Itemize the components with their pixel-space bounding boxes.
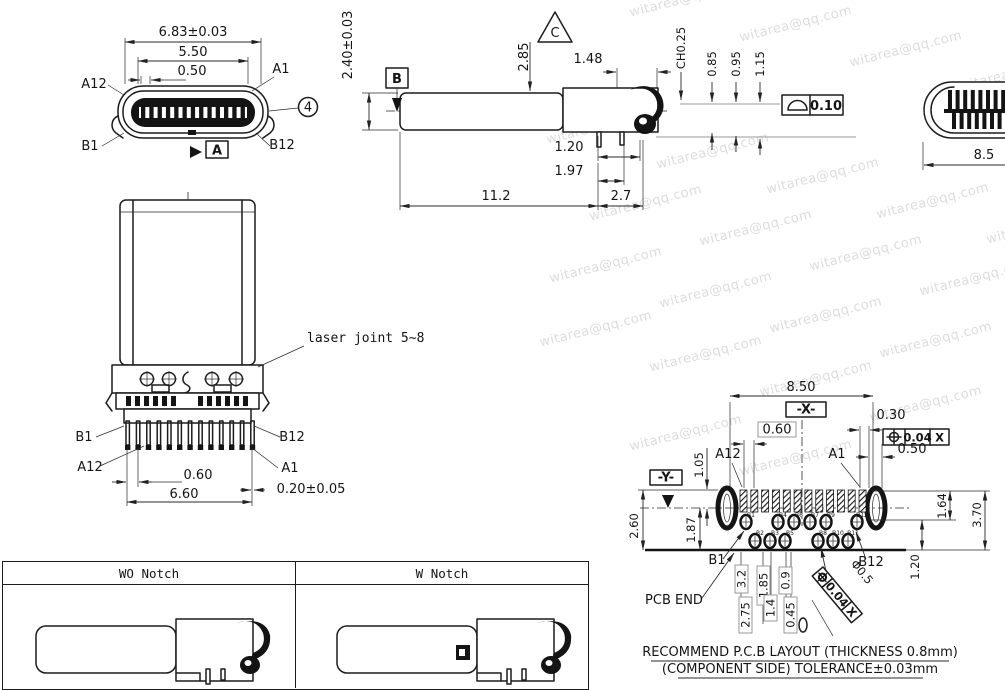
pad-label: B1	[747, 512, 755, 519]
label-a1: A1	[828, 447, 845, 462]
svg-text:-Y-: -Y-	[658, 471, 674, 486]
watermark: witarea@qq.com	[658, 269, 774, 311]
watermark: witarea@qq.com	[875, 180, 991, 222]
dim-275: 2.75	[739, 602, 753, 628]
dim-370: 3.70	[970, 502, 984, 528]
dim-095: 0.95	[729, 51, 743, 77]
watermark: witarea@qq.com	[918, 257, 1005, 299]
watermark: witarea@qq.com	[538, 308, 654, 350]
dim-850: 8.50	[787, 380, 816, 395]
dim-85: 8.5	[974, 148, 995, 163]
pcb-pads: B1B4B6B7B9B12B2B3B5B8B10B11	[640, 488, 912, 548]
label-a12: A12	[81, 77, 106, 92]
plug-body-view: laser joint 5~8 B1 B12 A12 A1 0.60 0.20±…	[64, 190, 444, 510]
dim-09: 0.9	[779, 571, 793, 589]
notch-col2-header: W Notch	[295, 562, 588, 584]
datum-y-symbol: -Y-	[650, 470, 682, 508]
notch-cell-w	[295, 585, 588, 688]
smt-pad-row	[740, 490, 866, 512]
dim-060: 0.60	[184, 468, 213, 483]
dim-120: 1.20	[555, 140, 584, 155]
watermark: witarea@qq.com	[648, 333, 764, 375]
partial-dimensions: 8.5	[923, 142, 1005, 170]
pad-label: B6	[795, 512, 803, 519]
svg-text:A: A	[212, 144, 222, 159]
label-a12: A12	[715, 447, 740, 462]
watermark: witarea@qq.com	[878, 319, 994, 361]
plug-outline	[106, 192, 269, 450]
pcb-end-label: PCB END	[645, 593, 703, 608]
dim-120: 1.20	[908, 554, 922, 580]
notch-cell-wo	[3, 585, 295, 688]
right-partial-view: 8.5	[912, 58, 1005, 176]
label-b1: B1	[75, 430, 92, 445]
dim-197: 1.97	[555, 164, 584, 179]
stacked-dim-boxes: 3.2 1.85 0.9 2.75 1.4 0.45	[735, 565, 798, 633]
notch-table-header: WO Notch W Notch	[3, 562, 588, 585]
pad-label: B10	[832, 530, 844, 537]
notch-col1-header: WO Notch	[3, 562, 295, 584]
label-a1: A1	[272, 62, 289, 77]
watermark: witarea@qq.com	[548, 244, 664, 286]
profile-tolerance-frame: 0.10	[782, 95, 843, 115]
datum-x-symbol: -X-	[786, 402, 826, 418]
datum-a-symbol: A	[190, 141, 228, 159]
front-view: 6.83±0.03 5.50 0.50 A12 A1 B1 B12 4	[78, 0, 370, 172]
svg-text:B: B	[392, 72, 402, 87]
pcb-title-line1: RECOMMEND P.C.B LAYOUT (THICKNESS 0.8mm)	[642, 645, 958, 660]
dim-inner: 5.50	[179, 45, 208, 60]
front-body-outline	[112, 86, 274, 138]
dim-085: 0.85	[705, 51, 719, 77]
pad-label: B4	[779, 512, 787, 519]
label-b1: B1	[708, 553, 725, 568]
drawing-sheet: witarea@qq.comwitarea@qq.comwitarea@qq.c…	[0, 0, 1005, 690]
label-b12: B12	[279, 430, 304, 445]
side-view: 2.40±0.03 B C 2.85 1.48 CH0.25 0.85	[336, 0, 870, 222]
balloon-4: 4	[269, 98, 318, 117]
plug-profile-outline	[36, 619, 270, 684]
pad-label: B5	[786, 530, 794, 537]
dim-105: 1.05	[692, 452, 706, 478]
pad-label: B12	[856, 512, 868, 519]
dim-185: 1.85	[757, 573, 771, 599]
dim-ch025: CH0.25	[674, 27, 688, 69]
watermark: witarea@qq.com	[808, 232, 924, 274]
svg-text:0.60: 0.60	[763, 423, 792, 438]
pcb-title-line2: (COMPONENT SIDE) TOLERANCE±0.03mm	[662, 662, 938, 677]
dim-030: 0.30	[877, 408, 906, 423]
dim-148: 1.48	[574, 52, 603, 67]
dim-pitch: 0.50	[178, 64, 207, 79]
pad-label: B7	[811, 512, 819, 519]
dim-187: 1.87	[684, 517, 698, 543]
svg-text:X: X	[935, 431, 944, 445]
notch-table: WO Notch W Notch	[2, 561, 589, 690]
pad-label: B9	[827, 512, 835, 519]
dim-050: 0.50	[898, 442, 927, 457]
dim-width: 6.83±0.03	[159, 25, 228, 40]
pad-label: B2	[756, 530, 764, 537]
pcb-layout-view: 8.50 -X- 0.60 0.30	[620, 378, 1005, 690]
pcb-titles: RECOMMEND P.C.B LAYOUT (THICKNESS 0.8mm)…	[642, 645, 958, 678]
laser-joint-note: laser joint 5~8	[307, 331, 424, 346]
dim-32: 3.2	[735, 570, 749, 588]
position-tolerance-frame-2: 0.04 X	[812, 567, 862, 623]
label-a12: A12	[77, 460, 102, 475]
watermark: witarea@qq.com	[768, 294, 884, 336]
dim-27: 2.7	[611, 189, 632, 204]
dim-height: 2.40±0.03	[341, 11, 356, 80]
svg-text:0.10: 0.10	[810, 99, 842, 114]
dim-660: 6.60	[170, 487, 199, 502]
dim-14: 1.4	[764, 599, 778, 617]
pad-label: B8	[819, 530, 827, 537]
dim-115: 1.15	[753, 51, 767, 77]
svg-text:-X-: -X-	[797, 403, 816, 418]
label-a1: A1	[281, 461, 298, 476]
dim-tolerance: 0.20±0.05	[277, 482, 346, 497]
label-b12: B12	[269, 138, 294, 153]
dim-112: 11.2	[482, 189, 511, 204]
label-b1: B1	[81, 139, 98, 154]
pad-label: B3	[771, 530, 779, 537]
dim-045: 0.45	[784, 602, 798, 628]
svg-text:C: C	[550, 26, 559, 41]
partial-body-outline	[924, 82, 1005, 138]
svg-text:4: 4	[304, 101, 312, 116]
dim-260: 2.60	[627, 513, 641, 539]
revision-triangle-c: C	[538, 12, 572, 42]
dim-164: 1.64	[935, 493, 949, 519]
dim-060-box: 0.60	[758, 422, 796, 438]
watermark: witarea@qq.com	[985, 205, 1005, 247]
